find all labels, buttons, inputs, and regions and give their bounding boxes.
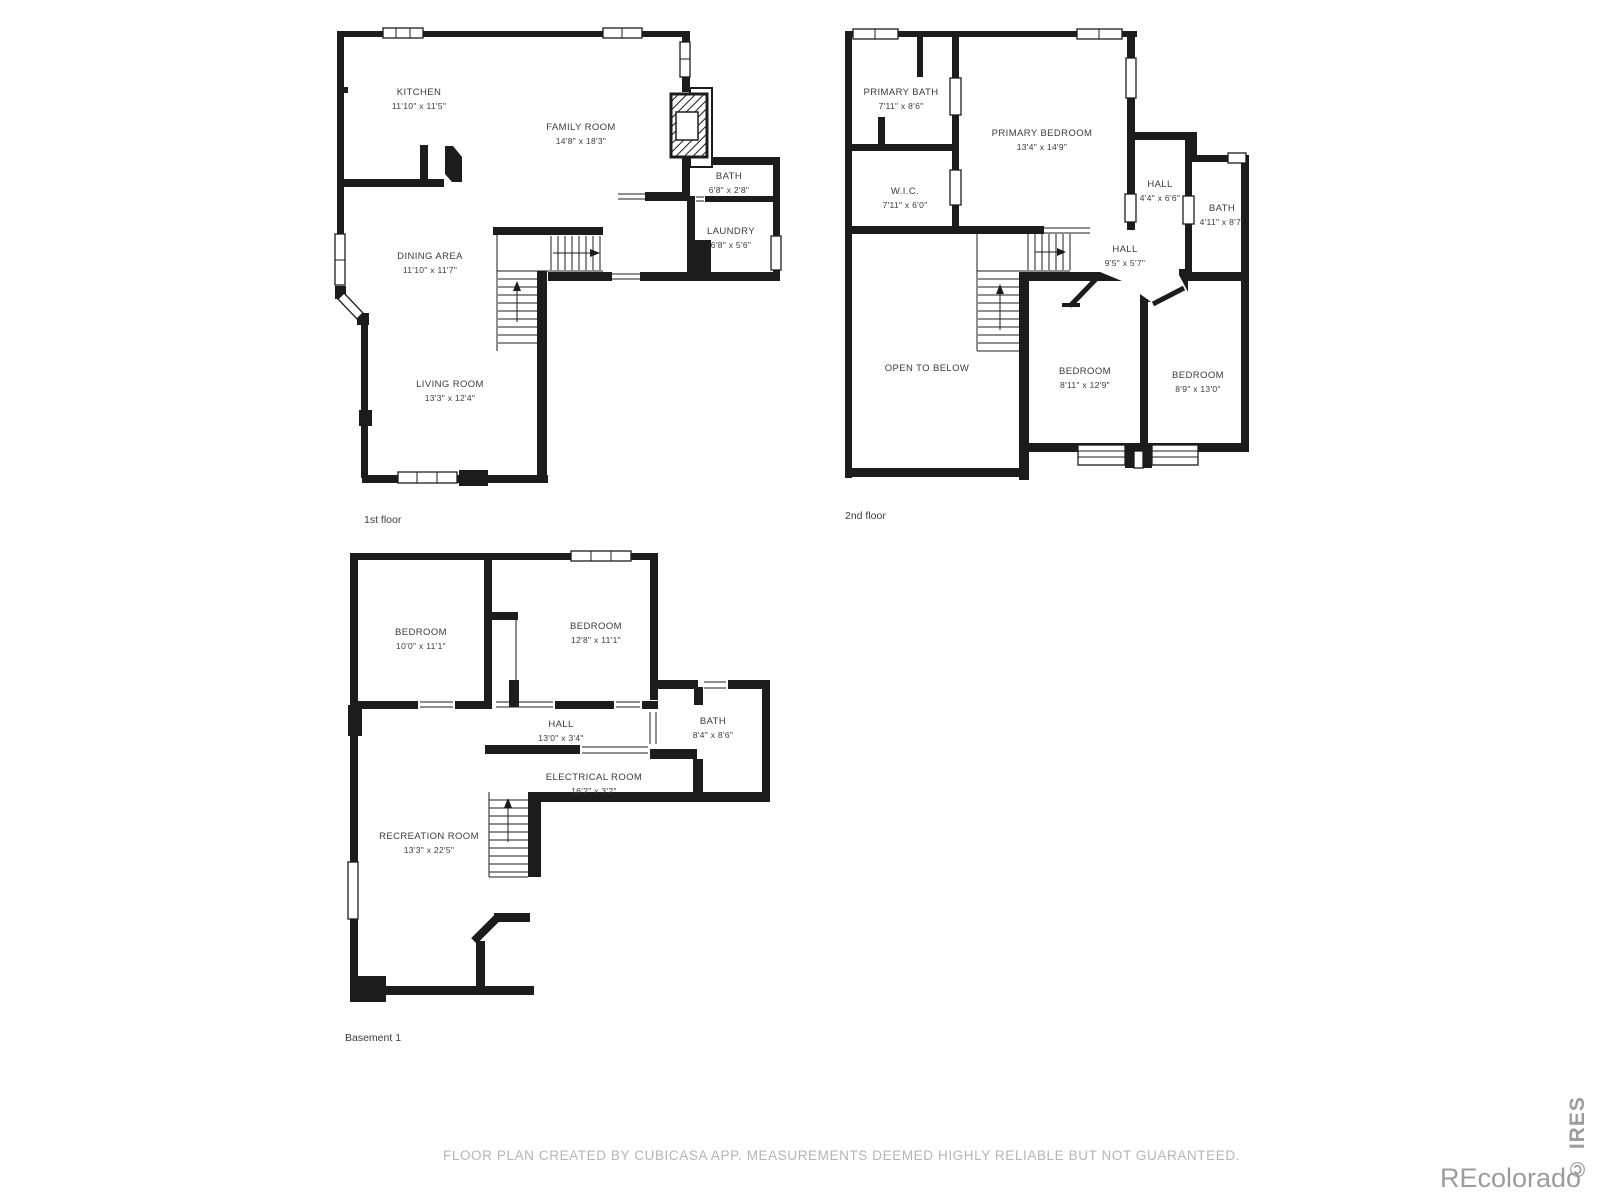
room-name: OPEN TO BELOW <box>885 362 970 376</box>
room-label-hall-landing: HALL9'5" x 5'7" <box>1105 243 1145 270</box>
room-dimensions: 7'11" x 8'6" <box>863 100 938 113</box>
room-name: DINING AREA <box>397 250 463 264</box>
room-name: BATH <box>1200 202 1245 216</box>
room-name: HALL <box>1140 178 1180 192</box>
room-name: PRIMARY BATH <box>863 86 938 100</box>
room-name: LIVING ROOM <box>416 378 484 392</box>
room-dimensions: 13'4" x 14'9" <box>992 141 1093 154</box>
room-dimensions: 14'8" x 18'3" <box>546 135 616 148</box>
room-name: BATH <box>693 715 733 729</box>
room-label-laundry: LAUNDRY6'8" x 5'6" <box>707 225 755 252</box>
room-name: W.I.C. <box>883 185 928 199</box>
room-label-bedroom-4: BEDROOM10'0" x 11'1" <box>395 626 447 653</box>
room-name: HALL <box>1105 243 1145 257</box>
room-label-living-room: LIVING ROOM13'3" x 12'4" <box>416 378 484 405</box>
room-label-wic: W.I.C.7'11" x 6'0" <box>883 185 928 212</box>
room-label-dining-area: DINING AREA11'10" x 11'7" <box>397 250 463 277</box>
floor-caption-basement: Basement 1 <box>345 1032 401 1044</box>
room-label-hall-basement: HALL13'0" x 3'4" <box>538 718 584 745</box>
room-label-bedroom-3: BEDROOM8'9" x 13'0" <box>1172 369 1224 396</box>
room-dimensions: 4'11" x 8'7" <box>1200 216 1245 229</box>
room-label-bedroom-2: BEDROOM8'11" x 12'9" <box>1059 365 1111 392</box>
room-dimensions: 13'0" x 3'4" <box>538 732 584 745</box>
room-dimensions: 9'5" x 5'7" <box>1105 257 1145 270</box>
floor-caption-first-floor: 1st floor <box>364 514 401 526</box>
room-dimensions: 13'3" x 22'5" <box>379 844 479 857</box>
room-label-family-room: FAMILY ROOM14'8" x 18'3" <box>546 121 616 148</box>
room-name: BEDROOM <box>570 620 622 634</box>
room-label-recreation-room: RECREATION ROOM13'3" x 22'5" <box>379 830 479 857</box>
room-dimensions: 10'0" x 11'1" <box>395 640 447 653</box>
room-label-bath-upper: BATH4'11" x 8'7" <box>1200 202 1245 229</box>
room-dimensions: 6'8" x 5'6" <box>707 239 755 252</box>
room-dimensions: 8'4" x 8'6" <box>693 729 733 742</box>
room-dimensions: 13'3" x 12'4" <box>416 392 484 405</box>
room-dimensions: 8'11" x 12'9" <box>1059 379 1111 392</box>
room-label-kitchen: KITCHEN11'10" x 11'5" <box>392 86 446 113</box>
room-label-bath-1: BATH6'8" x 2'8" <box>709 170 749 197</box>
room-dimensions: 11'10" x 11'7" <box>397 264 463 277</box>
room-label-primary-bedroom: PRIMARY BEDROOM13'4" x 14'9" <box>992 127 1093 154</box>
room-dimensions: 6'8" x 2'8" <box>709 184 749 197</box>
room-name: BATH <box>709 170 749 184</box>
room-name: BEDROOM <box>395 626 447 640</box>
room-name: RECREATION ROOM <box>379 830 479 844</box>
floor-plan-walls <box>0 0 1600 1200</box>
room-label-open-to-below: OPEN TO BELOW <box>885 362 970 376</box>
room-name: HALL <box>538 718 584 732</box>
room-dimensions: 7'11" x 6'0" <box>883 199 928 212</box>
room-name: BEDROOM <box>1172 369 1224 383</box>
room-dimensions: 16'2" x 3'2" <box>546 785 642 798</box>
floor-caption-second-floor: 2nd floor <box>845 510 886 522</box>
room-dimensions: 4'4" x 6'6" <box>1140 192 1180 205</box>
room-label-hall-upper: HALL4'4" x 6'6" <box>1140 178 1180 205</box>
room-label-electrical-room: ELECTRICAL ROOM16'2" x 3'2" <box>546 771 642 798</box>
room-dimensions: 8'9" x 13'0" <box>1172 383 1224 396</box>
first-floor-stairs <box>497 235 603 351</box>
ires-watermark: © IRES <box>1566 1096 1590 1180</box>
room-label-bath-basement: BATH8'4" x 8'6" <box>693 715 733 742</box>
room-name: ELECTRICAL ROOM <box>546 771 642 785</box>
room-label-primary-bath: PRIMARY BATH7'11" x 8'6" <box>863 86 938 113</box>
room-dimensions: 12'8" x 11'1" <box>570 634 622 647</box>
understairs-angled-wall <box>474 917 498 941</box>
room-name: KITCHEN <box>392 86 446 100</box>
floor-plan-page: KITCHEN11'10" x 11'5"FAMILY ROOM14'8" x … <box>0 0 1600 1200</box>
room-dimensions: 11'10" x 11'5" <box>392 100 446 113</box>
room-name: FAMILY ROOM <box>546 121 616 135</box>
basement-stairs <box>489 792 528 877</box>
fireplace-firebox <box>676 112 698 140</box>
room-name: PRIMARY BEDROOM <box>992 127 1093 141</box>
room-name: BEDROOM <box>1059 365 1111 379</box>
disclaimer-text: FLOOR PLAN CREATED BY CUBICASA APP. MEAS… <box>443 1148 1240 1163</box>
room-label-bedroom-5: BEDROOM12'8" x 11'1" <box>570 620 622 647</box>
room-name: LAUNDRY <box>707 225 755 239</box>
recolorado-watermark: REcolorado <box>1440 1163 1581 1194</box>
